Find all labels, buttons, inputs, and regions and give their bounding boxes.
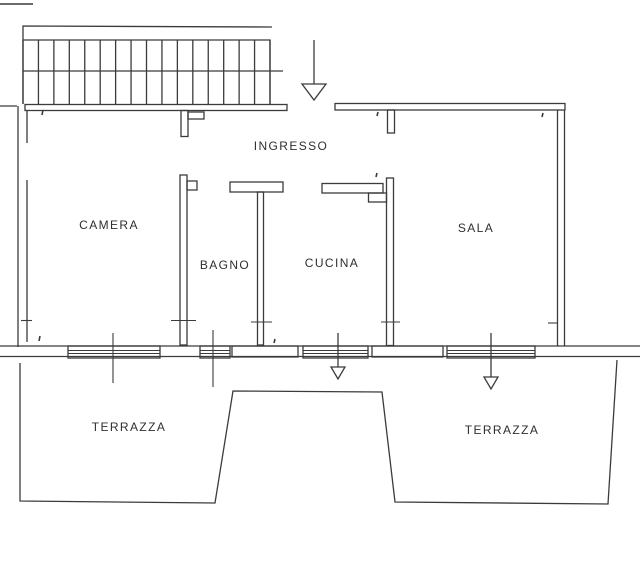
entrance-arrow-icon — [302, 40, 326, 100]
door-jamb-ingresso-camera — [181, 111, 188, 137]
room-label-cucina: CUCINA — [305, 256, 359, 270]
pen-mark — [542, 113, 543, 117]
room-label-terrazza-right: TERRAZZA — [465, 423, 540, 437]
room-label-camera: CAMERA — [79, 218, 139, 232]
floor-plan-drawing — [0, 0, 640, 582]
pen-mark — [39, 336, 40, 341]
pen-mark — [377, 112, 378, 116]
door-jamb-ingresso-camera-notch — [188, 112, 204, 119]
wall-camera-bagno — [180, 175, 187, 345]
pen-mark — [376, 173, 377, 177]
terrace-arrow-right-icon — [484, 333, 498, 389]
wall-cucina-sala-jamb — [369, 193, 387, 202]
room-label-terrazza-left: TERRAZZA — [92, 420, 167, 434]
top-wall-left — [25, 105, 287, 111]
staircase-outline — [23, 26, 272, 104]
wall-bagno-cucina-bar — [230, 182, 283, 192]
door-jamb-ingresso-sala — [388, 110, 395, 133]
floor-plan: INGRESSO CAMERA BAGNO CUCINA SALA TERRAZ… — [0, 0, 640, 582]
wall-cucina-sala-bar — [322, 184, 383, 194]
room-label-ingresso: INGRESSO — [254, 139, 329, 153]
room-label-bagno: BAGNO — [200, 258, 250, 272]
room-label-sala: SALA — [458, 221, 494, 235]
terrace-door-threshold-left — [232, 346, 298, 357]
pen-mark — [274, 339, 275, 343]
stair-risers — [23, 40, 270, 104]
wall-camera-bagno-jamb — [187, 181, 197, 190]
terrace-door-threshold-right — [372, 346, 443, 357]
pen-mark — [42, 110, 43, 115]
top-wall-right — [335, 104, 565, 111]
wall-cucina-sala — [387, 178, 394, 346]
